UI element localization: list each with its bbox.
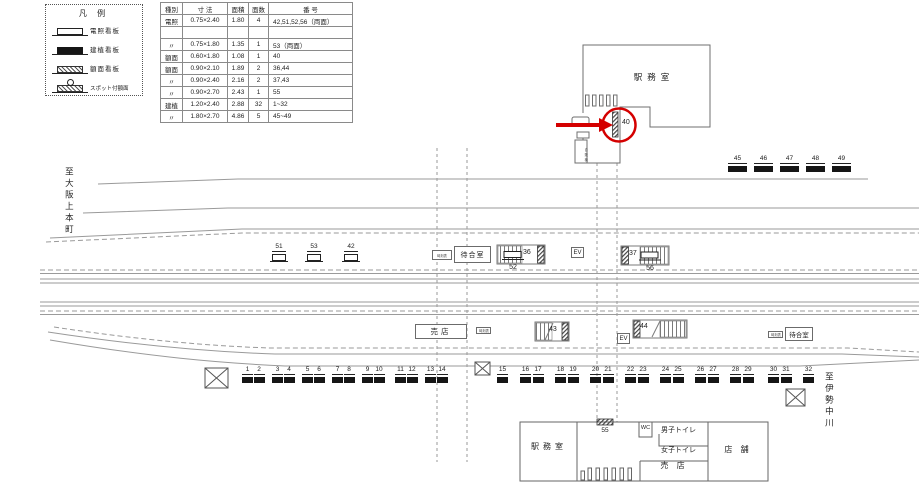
billboard-sign-26: 26 bbox=[695, 366, 706, 383]
stairs-hatch bbox=[660, 321, 686, 337]
billboard-sign-number: 8 bbox=[344, 366, 355, 375]
billboard-sign-9: 9 bbox=[362, 366, 373, 383]
billboard-sign-45: 45 bbox=[728, 155, 747, 172]
sign-44-label: 44 bbox=[640, 323, 648, 331]
spec-table-header-cell: 種別 bbox=[161, 3, 183, 15]
billboard-sign-block bbox=[708, 377, 719, 384]
billboard-sign-block bbox=[425, 377, 436, 384]
legend-item-spot: スポット付額面 bbox=[52, 78, 138, 95]
kiosk-building-label: 売 店 bbox=[642, 462, 706, 471]
billboard-sign-19: 19 bbox=[568, 366, 579, 383]
billboard-sign-number: 26 bbox=[695, 366, 706, 375]
legend-item-label: スポット付額面 bbox=[90, 84, 129, 92]
legend-title: 凡 例 bbox=[46, 8, 142, 19]
spec-table: 種別寸 法面積面数番 号 電照0.75×2.401.80442,51,52,56… bbox=[160, 2, 353, 123]
billboard-sign-block bbox=[695, 377, 706, 384]
billboard-sign-number: 7 bbox=[332, 366, 343, 375]
sign-37-panel bbox=[622, 247, 629, 264]
legend: 凡 例 電照看板 建植看板 額面看板 スポット付額面 bbox=[45, 4, 143, 96]
billboard-sign-42: 42 bbox=[342, 243, 360, 262]
wc-label: WC bbox=[639, 425, 652, 431]
billboard-sign-number: 10 bbox=[374, 366, 385, 375]
billboard-sign-number: 23 bbox=[638, 366, 649, 375]
elevator-2: EV bbox=[617, 333, 630, 344]
spec-table-row: 〃0.90×2.402.16237,43 bbox=[161, 75, 353, 87]
billboard-sign-18: 18 bbox=[555, 366, 566, 383]
legend-item-label: 電照看板 bbox=[90, 25, 120, 35]
billboard-sign-24: 24 bbox=[660, 366, 671, 383]
vending-machine-label: 自販機 bbox=[577, 142, 595, 169]
billboard-sign-46: 46 bbox=[754, 155, 773, 172]
sign-52-box bbox=[504, 252, 521, 258]
billboard-sign-2: 2 bbox=[254, 366, 265, 383]
billboard-sign-block bbox=[555, 377, 566, 384]
legend-item-label: 建植看板 bbox=[90, 44, 120, 54]
billboard-sign-51: 51 bbox=[270, 243, 288, 262]
billboard-sign-block bbox=[437, 377, 448, 384]
spec-table-header-cell: 面積 bbox=[228, 3, 249, 15]
billboard-sign-number: 25 bbox=[673, 366, 684, 375]
spec-table-row bbox=[161, 27, 353, 39]
billboard-sign-number: 3 bbox=[272, 366, 283, 375]
billboard-sign-20: 20 bbox=[590, 366, 601, 383]
spec-table-row: 額面0.90×2.101.89236,44 bbox=[161, 63, 353, 75]
billboard-sign-8: 8 bbox=[344, 366, 355, 383]
billboard-sign-block bbox=[781, 377, 792, 384]
billboard-sign-block bbox=[806, 166, 825, 172]
billboard-sign-block bbox=[362, 377, 373, 384]
billboard-sign-25: 25 bbox=[673, 366, 684, 383]
waiting-room-1: 待合室 bbox=[454, 246, 491, 263]
billboard-sign-number: 30 bbox=[768, 366, 779, 375]
sign-56-label: 56 bbox=[639, 265, 661, 273]
billboard-sign-block bbox=[272, 377, 283, 384]
billboard-sign-number: 4 bbox=[284, 366, 295, 375]
billboard-sign-block bbox=[660, 377, 671, 384]
sign-43-panel bbox=[562, 323, 568, 340]
spec-table-row: 電照0.75×2.401.80442,51,52,56（両面） bbox=[161, 15, 353, 27]
billboard-sign-block bbox=[780, 166, 799, 172]
spec-table-header-cell: 面数 bbox=[249, 3, 269, 15]
billboard-sign-number: 9 bbox=[362, 366, 373, 375]
womens-toilet-label: 女子トイレ bbox=[661, 447, 696, 455]
billboard-sign-12: 12 bbox=[407, 366, 418, 383]
billboard-sign-22: 22 bbox=[625, 366, 636, 383]
ticket-gates-bottom bbox=[581, 468, 632, 480]
sign-36-panel bbox=[538, 246, 545, 263]
spotlight-panel-sign-icon bbox=[52, 80, 88, 95]
billboard-sign-block bbox=[730, 377, 741, 384]
billboard-sign-32: 32 bbox=[803, 366, 814, 383]
sign-36-label: 36 bbox=[523, 249, 531, 257]
billboard-sign-block bbox=[374, 377, 385, 384]
billboard-sign-4: 4 bbox=[284, 366, 295, 383]
billboard-sign-block bbox=[590, 377, 601, 384]
billboard-sign-number: 19 bbox=[568, 366, 579, 375]
billboard-sign-block bbox=[395, 377, 406, 384]
billboard-sign-16: 16 bbox=[520, 366, 531, 383]
billboard-sign-6: 6 bbox=[314, 366, 325, 383]
small-fixture bbox=[577, 132, 589, 138]
station-platform-diagram: 凡 例 電照看板 建植看板 額面看板 スポット付額面 種別寸 法面積面数番 号 … bbox=[0, 0, 919, 491]
billboard-sign-5: 5 bbox=[302, 366, 313, 383]
billboard-sign-number: 47 bbox=[780, 155, 799, 164]
billboard-sign-47: 47 bbox=[780, 155, 799, 172]
spec-table-row: 額面0.60×1.801.08140 bbox=[161, 51, 353, 63]
billboard-sign-15: 15 bbox=[497, 366, 508, 383]
billboard-sign-23: 23 bbox=[638, 366, 649, 383]
billboard-sign-number: 22 bbox=[625, 366, 636, 375]
billboard-sign-53: 53 bbox=[305, 243, 323, 262]
waiting-room-2: 待合室 bbox=[785, 327, 813, 341]
billboard-sign-number: 17 bbox=[533, 366, 544, 375]
billboard-sign-number: 46 bbox=[754, 155, 773, 164]
notice-box-1: 時刻表 bbox=[432, 250, 452, 260]
spec-table-header-row: 種別寸 法面積面数番 号 bbox=[161, 3, 353, 15]
notice-box-2: 時刻表 bbox=[476, 327, 491, 334]
billboard-sign-number: 15 bbox=[497, 366, 508, 375]
billboard-sign-3: 3 bbox=[272, 366, 283, 383]
billboard-sign-block bbox=[497, 377, 508, 384]
billboard-sign-number: 1 bbox=[242, 366, 253, 375]
billboard-sign-number: 12 bbox=[407, 366, 418, 375]
mens-toilet-label: 男子トイレ bbox=[661, 427, 696, 435]
billboard-sign-31: 31 bbox=[781, 366, 792, 383]
billboard-sign-block bbox=[638, 377, 649, 384]
billboard-sign-number: 11 bbox=[395, 366, 406, 375]
kiosk-platform: 売店 bbox=[415, 324, 467, 339]
billboard-sign-number: 5 bbox=[302, 366, 313, 375]
spec-table-row: 〃0.90×2.702.43155 bbox=[161, 87, 353, 99]
billboard-sign-10: 10 bbox=[374, 366, 385, 383]
billboard-sign-block bbox=[533, 377, 544, 384]
billboard-sign-7: 7 bbox=[332, 366, 343, 383]
spec-table-row: 建植1.20×2.402.88321~32 bbox=[161, 99, 353, 111]
top-office-label: 駅務室 bbox=[622, 73, 686, 82]
billboard-sign-block bbox=[520, 377, 531, 384]
legend-item-label: 額面看板 bbox=[90, 63, 120, 73]
spec-table-row: 〃0.75×1.801.35153（両面） bbox=[161, 39, 353, 51]
billboard-sign-number: 24 bbox=[660, 366, 671, 375]
billboard-sign-14: 14 bbox=[437, 366, 448, 383]
notice-box-3: 時刻表 bbox=[768, 331, 783, 338]
built-sign-icon bbox=[52, 42, 88, 57]
billboard-sign-block bbox=[803, 377, 814, 384]
billboard-sign-13: 13 bbox=[425, 366, 436, 383]
sign-52-label: 52 bbox=[502, 264, 524, 272]
sign-40-label: 40 bbox=[622, 119, 630, 127]
billboard-sign-number: 21 bbox=[603, 366, 614, 375]
direction-left-label: 至大阪上本町 bbox=[64, 167, 73, 236]
billboard-sign-11: 11 bbox=[395, 366, 406, 383]
billboard-sign-block bbox=[728, 166, 747, 172]
panel-sign-icon bbox=[52, 61, 88, 76]
billboard-sign-block bbox=[832, 166, 851, 172]
billboard-sign-block bbox=[743, 377, 754, 384]
billboard-sign-block bbox=[344, 377, 355, 384]
billboard-sign-number: 18 bbox=[555, 366, 566, 375]
billboard-sign-block bbox=[673, 377, 684, 384]
platform2-structures bbox=[535, 320, 687, 341]
billboard-sign-number: 28 bbox=[730, 366, 741, 375]
billboard-sign-block bbox=[254, 377, 265, 384]
billboard-sign-block bbox=[625, 377, 636, 384]
billboard-sign-28: 28 bbox=[730, 366, 741, 383]
billboard-sign-number: 45 bbox=[728, 155, 747, 164]
billboard-sign-block bbox=[284, 377, 295, 384]
billboard-sign-number: 2 bbox=[254, 366, 265, 375]
billboard-sign-block bbox=[332, 377, 343, 384]
billboard-sign-21: 21 bbox=[603, 366, 614, 383]
billboard-sign-1: 1 bbox=[242, 366, 253, 383]
billboard-sign-number: 48 bbox=[806, 155, 825, 164]
billboard-sign-number: 6 bbox=[314, 366, 325, 375]
billboard-sign-number: 31 bbox=[781, 366, 792, 375]
sign-55-label: 55 bbox=[597, 427, 613, 434]
elevator-1: EV bbox=[571, 247, 584, 258]
billboard-sign-30: 30 bbox=[768, 366, 779, 383]
overpass-dashed-lines bbox=[437, 148, 617, 462]
billboard-sign-49: 49 bbox=[832, 155, 851, 172]
billboard-sign-48: 48 bbox=[806, 155, 825, 172]
sign-37-label: 37 bbox=[629, 250, 637, 258]
spec-table-header-cell: 寸 法 bbox=[183, 3, 228, 15]
billboard-sign-number: 32 bbox=[803, 366, 814, 375]
billboard-sign-number: 16 bbox=[520, 366, 531, 375]
billboard-sign-block bbox=[568, 377, 579, 384]
billboard-sign-29: 29 bbox=[743, 366, 754, 383]
billboard-sign-block bbox=[314, 377, 325, 384]
billboard-sign-number: 27 bbox=[708, 366, 719, 375]
billboard-sign-number: 13 bbox=[425, 366, 436, 375]
legend-item-built: 建植看板 bbox=[52, 40, 138, 57]
sign-56-box bbox=[641, 252, 658, 258]
bottom-office-label: 駅務室 bbox=[521, 443, 577, 452]
billboard-sign-block bbox=[754, 166, 773, 172]
billboard-sign-block bbox=[407, 377, 418, 384]
legend-item-panel: 額面看板 bbox=[52, 59, 138, 76]
illuminated-sign-icon bbox=[52, 23, 88, 38]
billboard-sign-17: 17 bbox=[533, 366, 544, 383]
spec-table-header-cell: 番 号 bbox=[269, 3, 353, 15]
billboard-sign-number: 14 bbox=[437, 366, 448, 375]
sign-43-label: 43 bbox=[549, 326, 557, 334]
sign-40-panel bbox=[613, 112, 619, 137]
billboard-sign-block bbox=[302, 377, 313, 384]
billboard-sign-27: 27 bbox=[708, 366, 719, 383]
billboard-sign-number: 29 bbox=[743, 366, 754, 375]
billboard-sign-block bbox=[242, 377, 253, 384]
billboard-sign-number: 20 bbox=[590, 366, 601, 375]
billboard-sign-block bbox=[768, 377, 779, 384]
billboard-sign-number: 49 bbox=[832, 155, 851, 164]
spec-table-row: 〃1.80×2.704.86545~49 bbox=[161, 111, 353, 123]
direction-right-label: 至伊勢中川 bbox=[824, 372, 833, 430]
shop-label: 店 舗 bbox=[710, 446, 766, 455]
sign-55-panel bbox=[597, 419, 613, 425]
billboard-sign-block bbox=[603, 377, 614, 384]
legend-item-illuminated: 電照看板 bbox=[52, 21, 138, 38]
